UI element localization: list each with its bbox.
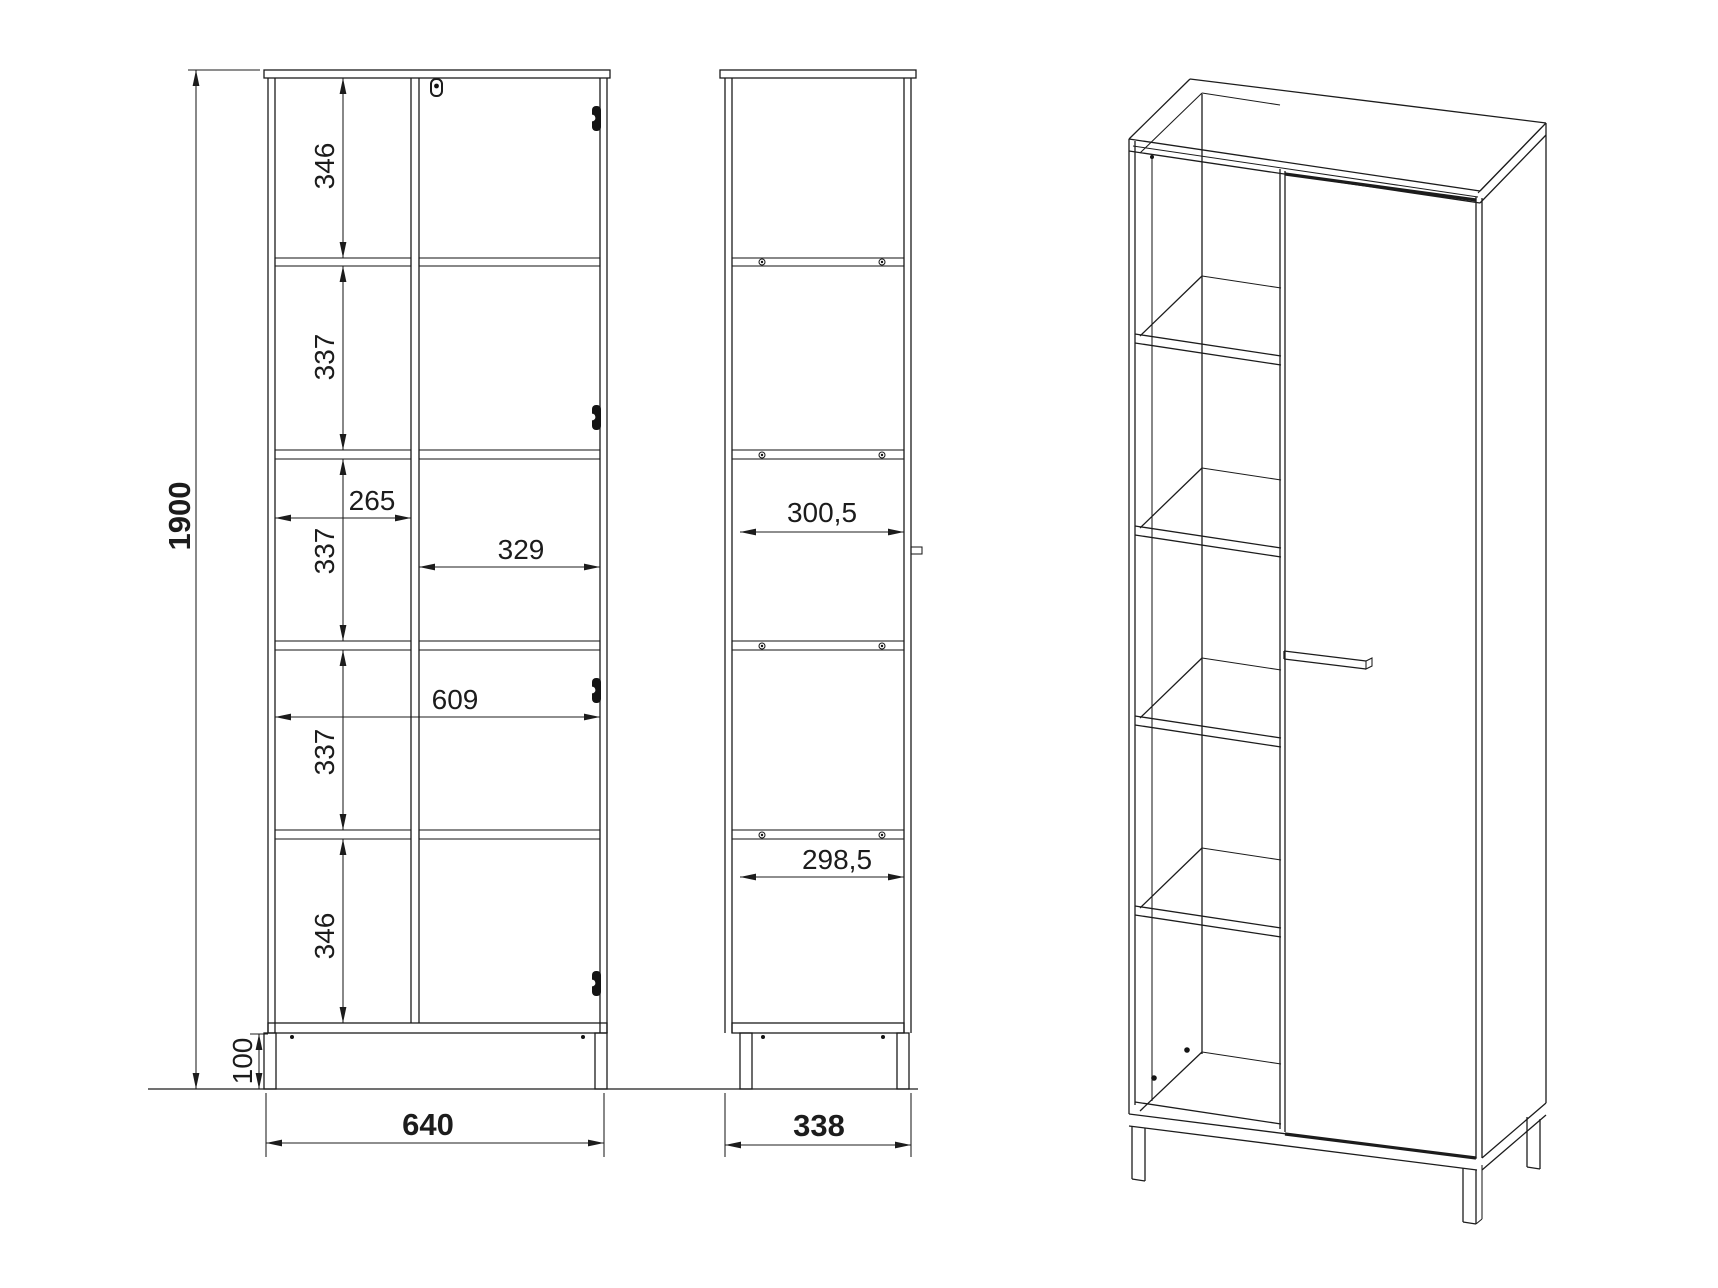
dim-cell-1: 346	[309, 143, 340, 190]
perspective-view	[1129, 79, 1546, 1224]
dim-total-height: 1900	[162, 482, 197, 551]
dim-cell-2: 337	[309, 334, 340, 381]
dim-cell-3: 337	[309, 528, 340, 575]
lock-keyhole-icon	[431, 79, 442, 96]
front-dimensions: 1900 346 337 337 337 346 265 329 609	[162, 70, 604, 1157]
side-view: 300,5 298,5 338	[720, 70, 922, 1157]
dim-cell-5: 346	[309, 913, 340, 960]
hinge-icon	[589, 678, 601, 703]
door-hinges	[589, 106, 601, 996]
dim-base-height: 100	[227, 1038, 258, 1085]
cabinet-drawing: 1900 346 337 337 337 346 265 329 609	[0, 0, 1718, 1288]
door-handle-side	[911, 547, 922, 554]
dim-right-column-width: 329	[498, 534, 545, 565]
dim-inner-width: 609	[432, 684, 479, 715]
dim-total-depth: 338	[793, 1108, 845, 1143]
dim-upper-inner-depth: 300,5	[787, 497, 857, 528]
hinge-icon	[589, 106, 601, 131]
dim-left-column-width: 265	[349, 485, 396, 516]
hinge-icon	[589, 405, 601, 430]
front-view: 1900 346 337 337 337 346 265 329 609	[162, 70, 610, 1157]
p-shelves	[1135, 276, 1281, 1124]
hinge-icon	[589, 971, 601, 996]
p-top-face	[1129, 79, 1546, 203]
side-dimensions: 300,5 298,5 338	[725, 497, 911, 1157]
dim-cell-4: 337	[309, 729, 340, 776]
p-body-edges	[1129, 93, 1546, 1158]
p-base	[1129, 1103, 1546, 1224]
technical-drawing-canvas: 1900 346 337 337 337 346 265 329 609	[0, 0, 1718, 1288]
dim-lower-inner-depth: 298,5	[802, 844, 872, 875]
p-door-handle	[1284, 651, 1372, 669]
side-cabinet-body	[720, 70, 922, 1089]
dim-total-width: 640	[402, 1107, 454, 1142]
